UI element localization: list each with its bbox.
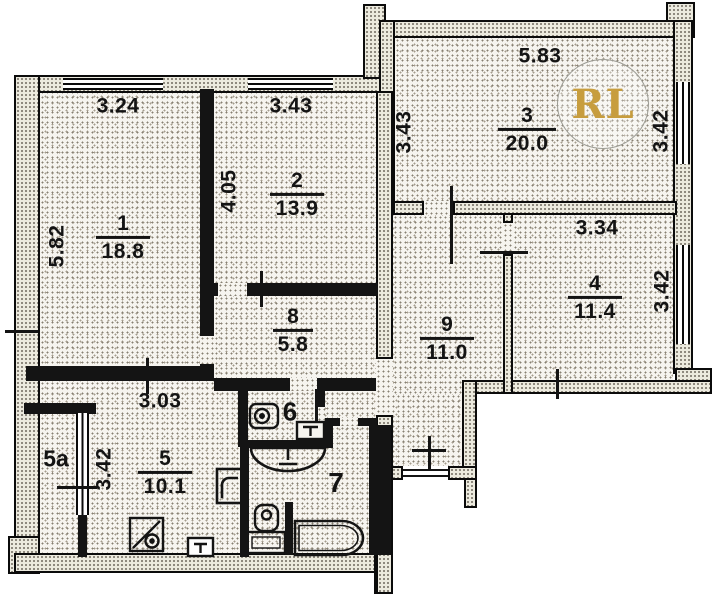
room-2-label: 2 13.9 [270, 170, 324, 220]
watermark-text: RL [571, 81, 634, 128]
fraction-bar [96, 236, 150, 239]
room-number: 5 [138, 448, 192, 470]
room-5a-label: 5a [43, 446, 69, 473]
room-3-label: 3 20.0 [498, 105, 556, 155]
toilet-icon [247, 505, 285, 553]
dim-room4-top: 3.34 [576, 218, 619, 239]
room-area: 11.0 [420, 341, 474, 364]
dim-room4-right: 3.42 [652, 270, 673, 313]
dim-hall-width: 3.03 [139, 391, 182, 412]
fraction-bar [568, 296, 622, 299]
watermark-logo: RL [557, 59, 649, 149]
dim-room2-top: 3.43 [270, 96, 313, 117]
fraction-bar [420, 337, 474, 340]
dim-room3-top: 5.83 [519, 46, 562, 67]
washing-machine-icon [130, 518, 163, 551]
room-8-label: 8 5.8 [273, 306, 313, 356]
room-number: 3 [498, 105, 556, 127]
fraction-bar [138, 471, 192, 474]
room-area: 13.9 [270, 197, 324, 220]
toilet-icon [250, 404, 278, 428]
bathtub-icon [295, 521, 363, 555]
floor-plan: 3.24 3.43 5.83 5.82 4.05 3.43 3.42 3.34 … [0, 0, 713, 600]
room-number: 9 [420, 314, 474, 336]
dim-hall-left: 3.42 [94, 448, 115, 491]
fraction-bar [270, 193, 324, 196]
washbasin-icon [251, 448, 325, 471]
vent-shaft-icon [217, 469, 242, 503]
sink-icon [297, 422, 324, 439]
room-6-label: 6 [283, 397, 297, 428]
dim-room1-top: 3.24 [97, 96, 140, 117]
room-9-label: 9 11.0 [420, 314, 474, 364]
room-4-label: 4 11.4 [568, 273, 622, 323]
room-area: 5.8 [273, 333, 313, 356]
dim-room3-left: 3.43 [394, 111, 415, 154]
sink-icon [188, 538, 213, 556]
room-number: 2 [270, 170, 324, 192]
room-number: 8 [273, 306, 313, 328]
room-5-label: 5 10.1 [138, 448, 192, 498]
fraction-bar [498, 128, 556, 131]
dim-room3-right: 3.42 [651, 110, 672, 153]
dim-room1-left: 5.82 [47, 225, 68, 268]
room-area: 20.0 [498, 132, 556, 155]
dim-room2-left: 4.05 [219, 170, 240, 213]
room-number: 1 [96, 213, 150, 235]
room-number: 4 [568, 273, 622, 295]
room-7-label: 7 [328, 467, 344, 499]
room-area: 10.1 [138, 475, 192, 498]
fraction-bar [273, 329, 313, 332]
room-area: 18.8 [96, 240, 150, 263]
room-1-label: 1 18.8 [96, 213, 150, 263]
room-area: 11.4 [568, 300, 622, 323]
